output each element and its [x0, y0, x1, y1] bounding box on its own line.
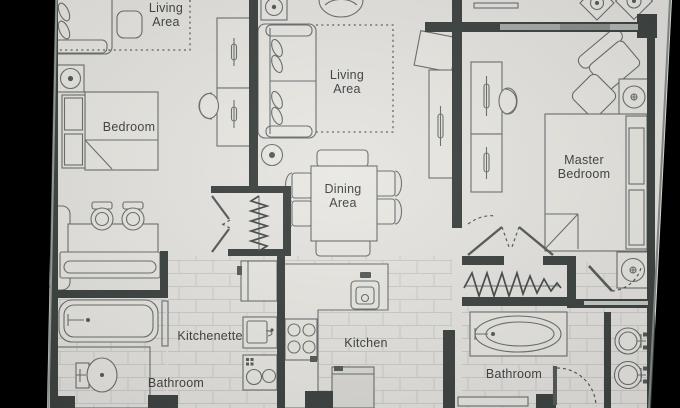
kitchenette-cooktop-symbol	[243, 355, 277, 390]
master-bath-counter-symbol	[458, 397, 528, 406]
master-window	[500, 24, 638, 30]
master-nightstand-bottom-symbol	[617, 252, 650, 288]
kitchenette-cabinet-symbol	[237, 261, 277, 301]
master-desk-chair-symbol	[499, 88, 517, 114]
left-unit-desk-symbol	[217, 18, 251, 146]
left-bath-tub-symbol	[59, 300, 158, 342]
mid-unit-round-table-symbol	[262, 145, 283, 166]
floor-plan-photo: Living Area Bedroom Living Area Dining A…	[0, 0, 680, 408]
mid-unit-lamp-table-symbol	[261, 0, 287, 20]
master-dresser-symbol	[471, 62, 502, 192]
left-unit-bed-symbol	[62, 92, 158, 170]
floor-plan-canvas	[0, 0, 680, 408]
master-bed-symbol	[545, 114, 647, 251]
left-unit-desk-chair-symbol	[199, 93, 219, 119]
kitchen-refrigerator-symbol	[332, 366, 374, 408]
left-unit-lamp-table-symbol	[57, 65, 84, 92]
master-nightstand-top-symbol	[619, 79, 650, 115]
towel-rod	[584, 301, 648, 305]
master-tub-symbol	[470, 312, 567, 356]
left-unit-side-table-symbol	[117, 11, 142, 38]
kitchenette-sink-symbol	[243, 317, 277, 348]
mid-unit-sofa-symbol	[258, 24, 316, 138]
